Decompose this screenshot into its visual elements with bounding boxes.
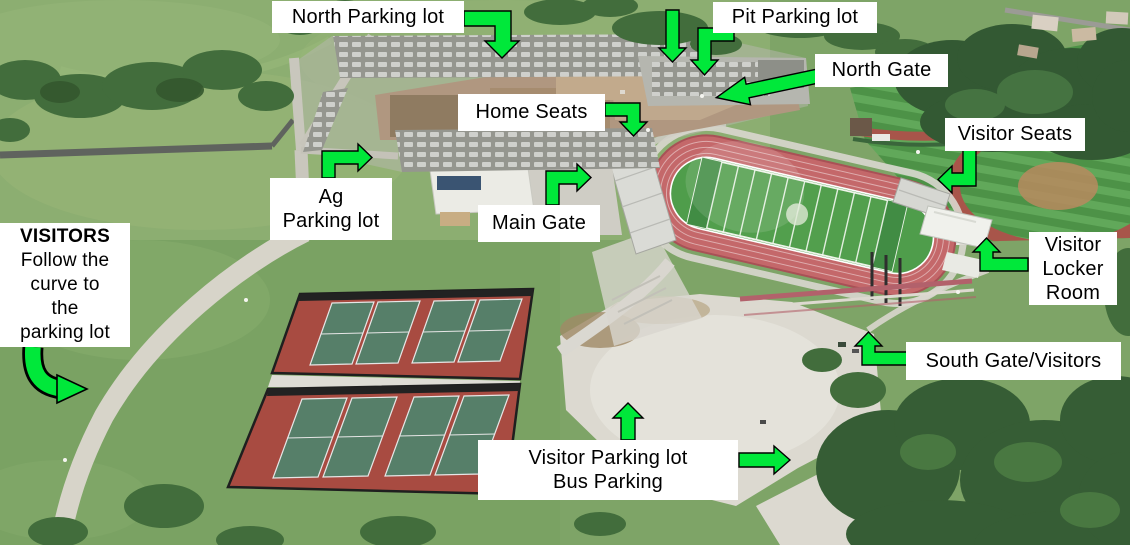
campus-aerial-map: North Parking lot Pit Parking lot North … — [0, 0, 1130, 545]
visitor-parking-line2: Bus Parking — [553, 470, 663, 494]
solar-panels — [437, 176, 481, 190]
label-pit-parking-lot: Pit Parking lot — [713, 2, 877, 33]
ag-parking-line2: Parking lot — [283, 209, 380, 233]
visitors-note-line3: the — [51, 297, 78, 321]
label-visitor-locker-room: Visitor Locker Room — [1029, 232, 1117, 305]
visitor-locker-line3: Room — [1046, 281, 1100, 305]
ag-parking-line1: Ag — [319, 185, 344, 209]
label-home-seats: Home Seats — [458, 94, 605, 131]
main-gate-text: Main Gate — [492, 211, 586, 235]
visitors-note-title: VISITORS — [20, 225, 110, 249]
label-south-gate-visitors: South Gate/Visitors — [906, 342, 1121, 380]
front-parking-lot — [395, 128, 660, 172]
label-north-parking-lot: North Parking lot — [272, 1, 464, 33]
visitors-note-line4: parking lot — [20, 321, 110, 345]
label-visitor-seats: Visitor Seats — [945, 118, 1085, 151]
north-gate-text: North Gate — [832, 58, 932, 82]
north-parking-text: North Parking lot — [292, 5, 444, 29]
pit-parking-text: Pit Parking lot — [732, 5, 858, 29]
south-gate-text: South Gate/Visitors — [926, 349, 1102, 373]
visitor-parking-line1: Visitor Parking lot — [528, 446, 687, 470]
visitors-note-line2: curve to — [30, 273, 99, 297]
label-north-gate: North Gate — [815, 54, 948, 87]
visitor-seats-text: Visitor Seats — [958, 122, 1073, 146]
visitor-locker-line1: Visitor — [1045, 233, 1102, 257]
label-main-gate: Main Gate — [478, 205, 600, 242]
label-ag-parking-lot: Ag Parking lot — [270, 178, 392, 240]
label-visitor-parking-lot: Visitor Parking lot Bus Parking — [478, 440, 738, 500]
visitor-locker-line2: Locker — [1042, 257, 1103, 281]
visitors-note-line1: Follow the — [21, 249, 110, 273]
home-seats-text: Home Seats — [475, 100, 587, 124]
label-visitors-note: VISITORS Follow the curve to the parking… — [0, 223, 130, 347]
